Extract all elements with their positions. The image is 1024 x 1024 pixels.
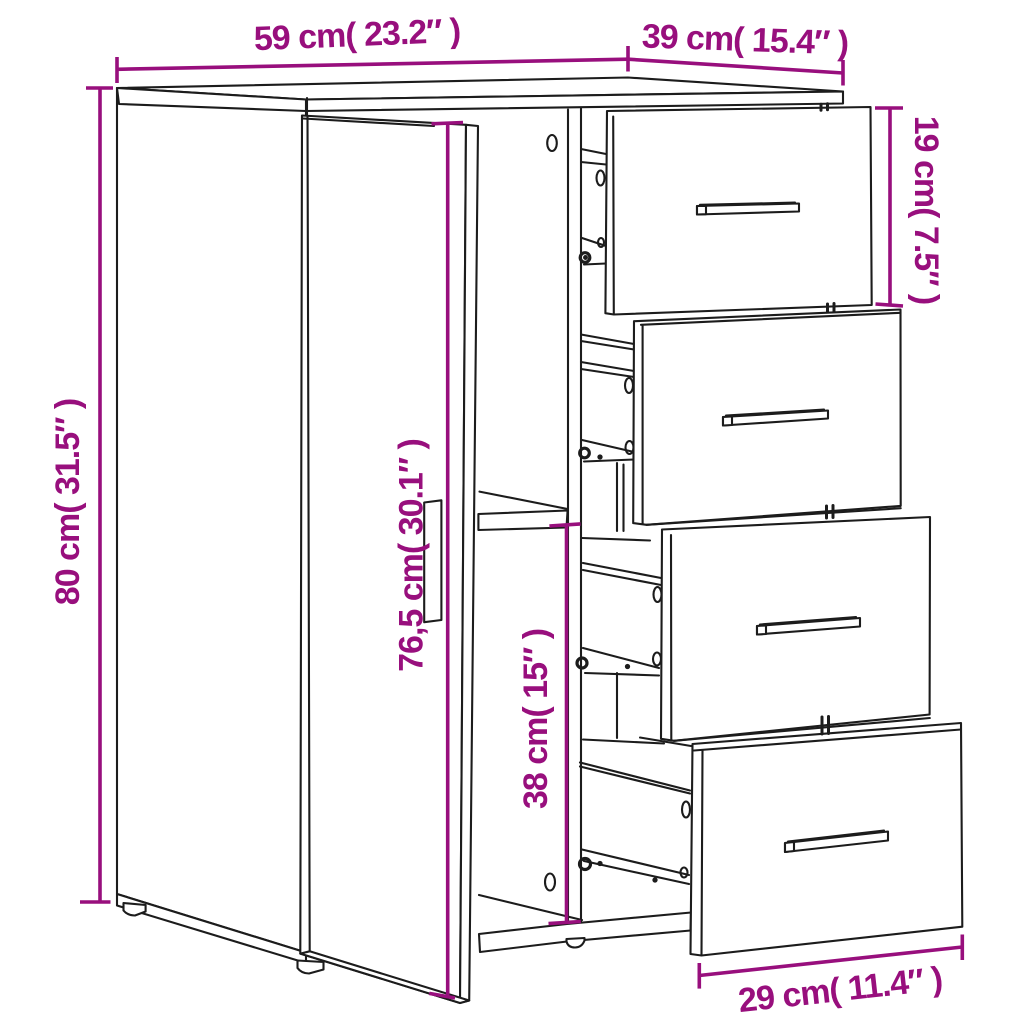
svg-text:76,5 cm( 30.1″ ): 76,5 cm( 30.1″ ) [393, 439, 431, 672]
svg-text:39 cm( 15.4″ ): 39 cm( 15.4″ ) [641, 17, 849, 62]
svg-text:19 cm( 7.5″ ): 19 cm( 7.5″ ) [907, 116, 945, 305]
svg-text:38 cm( 15″ ): 38 cm( 15″ ) [517, 629, 555, 809]
svg-text:80 cm( 31.5″ ): 80 cm( 31.5″ ) [49, 399, 87, 605]
